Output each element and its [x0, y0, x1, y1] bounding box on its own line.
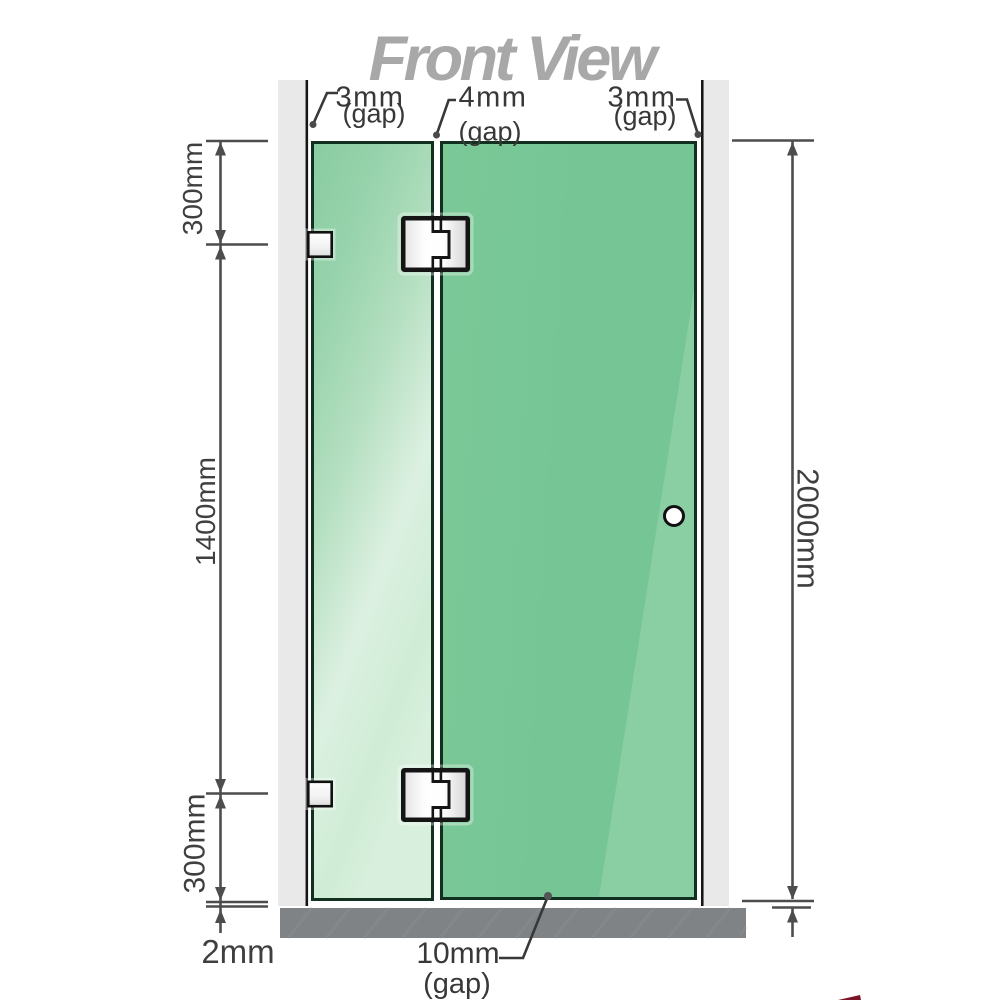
svg-text:300mm: 300mm — [179, 793, 212, 893]
svg-text:2mm: 2mm — [201, 933, 274, 970]
svg-text:(gap): (gap) — [342, 99, 405, 129]
svg-text:2000mm: 2000mm — [791, 468, 826, 589]
svg-text:4mm: 4mm — [459, 82, 528, 114]
svg-text:10mm: 10mm — [416, 937, 499, 970]
svg-text:(gap): (gap) — [613, 101, 676, 131]
svg-text:(gap): (gap) — [458, 117, 521, 147]
svg-text:300mm: 300mm — [177, 142, 208, 235]
svg-text:1400mm: 1400mm — [190, 457, 221, 566]
svg-text:(gap): (gap) — [423, 968, 491, 1000]
